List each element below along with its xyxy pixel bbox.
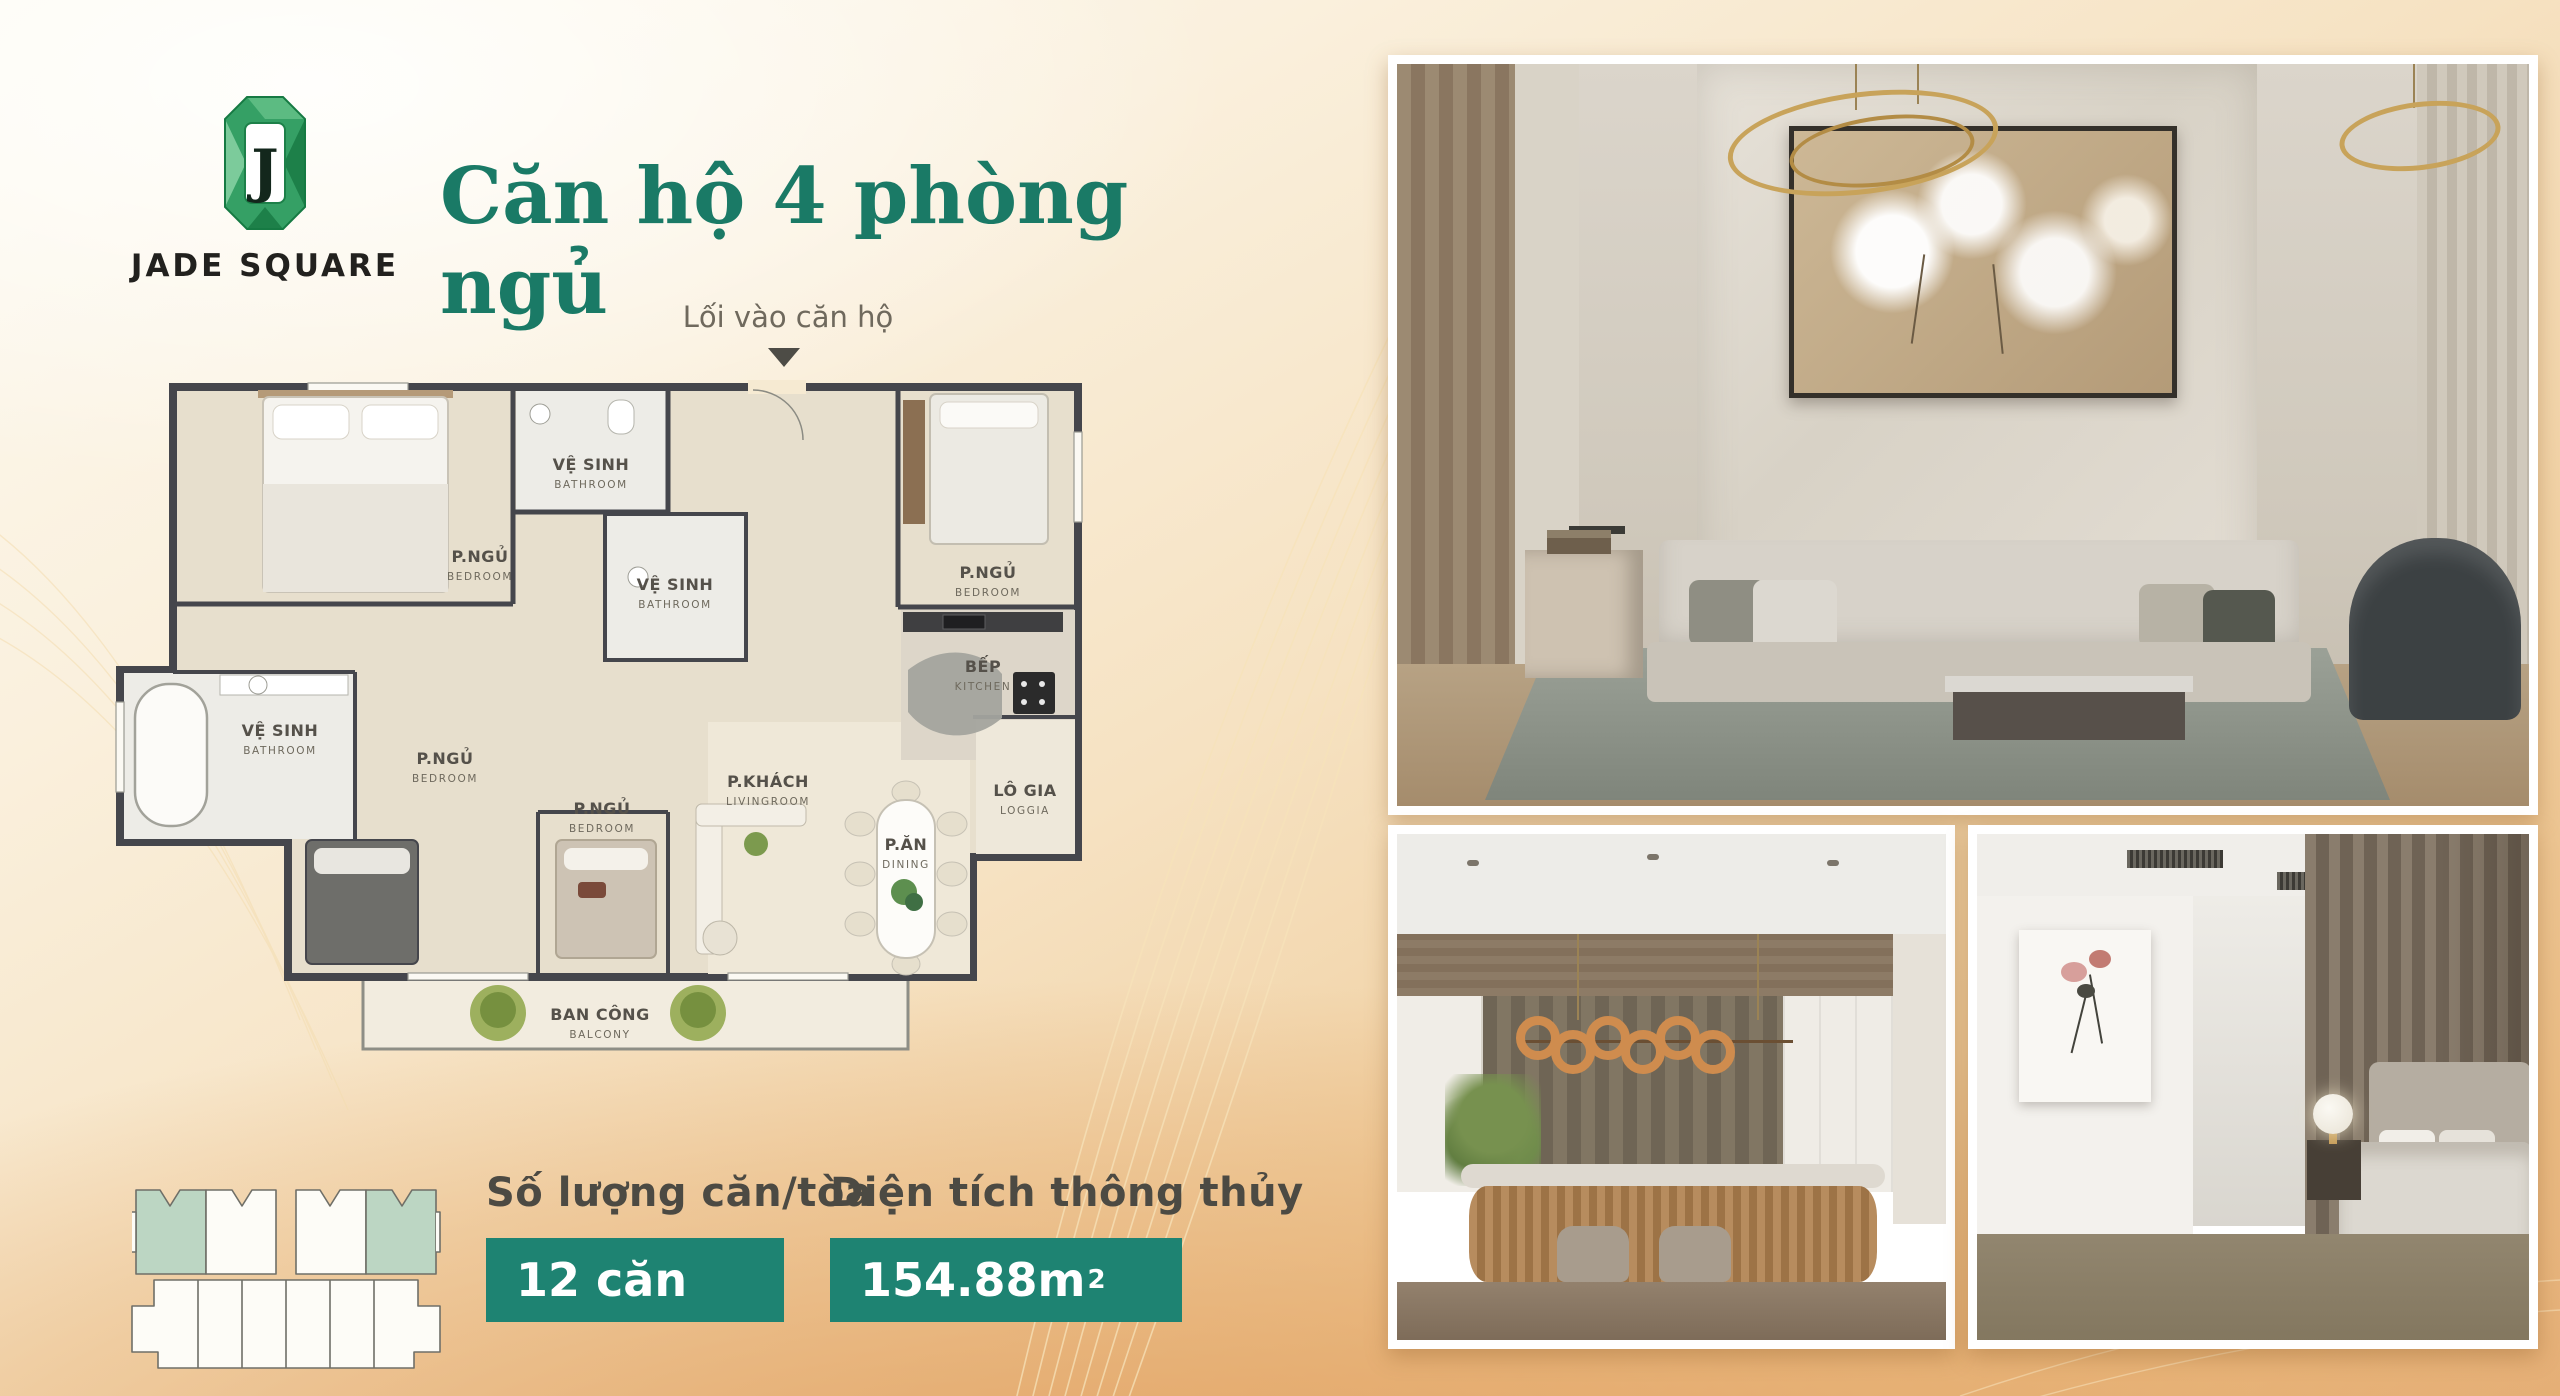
units-per-tower-label: Số lượng căn/tòa (486, 1170, 872, 1216)
svg-text:VỆ SINH: VỆ SINH (242, 720, 319, 740)
net-area-badge: 154.88m2 (830, 1238, 1182, 1322)
wardrobe (903, 400, 925, 524)
unit-highlighted-2 (366, 1190, 436, 1274)
room-label-dining: P.ĂN DINING (882, 835, 930, 871)
svg-text:P.NGỦ: P.NGỦ (452, 545, 509, 566)
tall-cabinets (1783, 996, 1893, 1192)
living-room-photo (1388, 55, 2538, 815)
svg-text:BEDROOM: BEDROOM (955, 587, 1021, 599)
brand-name: JADE SQUARE (130, 248, 400, 284)
svg-text:LÔ GIA: LÔ GIA (993, 781, 1056, 800)
svg-text:LOGGIA: LOGGIA (1000, 805, 1050, 817)
sheer-window (2193, 896, 2305, 1226)
svg-text:P.NGỦ: P.NGỦ (960, 561, 1017, 582)
flower-artwork (2019, 930, 2151, 1102)
room-label-loggia: LÔ GIA LOGGIA (993, 781, 1056, 817)
floor (1397, 1282, 1946, 1340)
net-area-label: Diện tích thông thủy (830, 1170, 1304, 1216)
island-countertop (1461, 1164, 1885, 1188)
unit-highlighted-1 (136, 1190, 206, 1274)
entry-label: Lối vào căn hộ (648, 300, 928, 334)
units-per-tower-badge: 12 căn (486, 1238, 784, 1322)
svg-text:P.NGỦ: P.NGỦ (574, 797, 631, 818)
nightstand (2307, 1140, 2361, 1200)
net-area-value: 154.88m (860, 1253, 1085, 1307)
svg-text:BATHROOM: BATHROOM (243, 745, 317, 757)
ceiling-vent (2127, 850, 2223, 868)
svg-text:VỆ SINH: VỆ SINH (553, 454, 630, 474)
svg-text:LIVINGROOM: LIVINGROOM (726, 796, 810, 808)
bar-chair (1557, 1226, 1629, 1282)
units-per-tower-value: 12 căn (516, 1253, 687, 1307)
svg-text:BẾP: BẾP (965, 655, 1001, 676)
room-label-bathroom-top: VỆ SINH BATHROOM (553, 454, 630, 491)
kitchen-dining-photo (1388, 825, 1955, 1349)
svg-text:P.KHÁCH: P.KHÁCH (727, 772, 809, 791)
room-label-bedroom-master: P.NGỦ BEDROOM (447, 545, 513, 583)
brochure-page: J JADE SQUARE Căn hộ 4 phòng ngủ Lối vào… (0, 0, 2560, 1396)
carpet-floor (1977, 1234, 2529, 1340)
svg-text:BEDROOM: BEDROOM (412, 773, 478, 785)
svg-text:BEDROOM: BEDROOM (447, 571, 513, 583)
svg-text:P.NGỦ: P.NGỦ (417, 747, 474, 768)
room-label-living-room: P.KHÁCH LIVINGROOM (726, 772, 810, 808)
bedroom-photo (1968, 825, 2538, 1349)
coffee-table (1953, 690, 2185, 740)
building-floorplate-diagram (130, 1182, 442, 1377)
room-label-bedroom-bottom-center: P.NGỦ BEDROOM (569, 797, 635, 835)
svg-text:BEDROOM: BEDROOM (569, 823, 635, 835)
room-label-bathroom-left: VỆ SINH BATHROOM (242, 720, 319, 757)
bathtub (135, 684, 207, 826)
wood-soffit (1397, 934, 1946, 996)
jade-gem-icon: J (224, 96, 306, 230)
hallway (1893, 934, 1946, 1224)
entry-door-gap (748, 380, 806, 394)
apartment-floor-plan: VỆ SINH BATHROOM P.NGỦ BEDROOM VỆ SINH B… (108, 372, 1108, 1064)
svg-text:DINING: DINING (882, 859, 930, 871)
side-table (1525, 550, 1643, 678)
brand-logo: J JADE SQUARE (130, 96, 400, 284)
room-label-bedroom-bottom-left: P.NGỦ BEDROOM (412, 747, 478, 785)
room-label-bathroom-center: VỆ SINH BATHROOM (637, 574, 714, 611)
svg-text:BAN CÔNG: BAN CÔNG (550, 1005, 649, 1024)
room-label-bedroom-top-right: P.NGỦ BEDROOM (955, 561, 1021, 599)
ceiling (1397, 834, 1946, 934)
svg-text:VỆ SINH: VỆ SINH (637, 574, 714, 594)
stove (1013, 672, 1055, 714)
globe-lamp (2313, 1094, 2353, 1134)
svg-text:BATHROOM: BATHROOM (554, 479, 628, 491)
accent-armchair (2349, 538, 2521, 720)
svg-text:KITCHEN: KITCHEN (955, 681, 1012, 693)
books-and-bowl (1547, 538, 1611, 554)
wave-chandelier (1525, 1016, 1735, 1060)
svg-text:BALCONY: BALCONY (569, 1029, 630, 1041)
wood-panel (1397, 64, 1515, 676)
entry-arrow-icon (768, 348, 800, 367)
logo-monogram: J (246, 137, 278, 205)
bar-chair (1659, 1226, 1731, 1282)
svg-text:P.ĂN: P.ĂN (885, 835, 928, 854)
svg-text:BATHROOM: BATHROOM (638, 599, 712, 611)
